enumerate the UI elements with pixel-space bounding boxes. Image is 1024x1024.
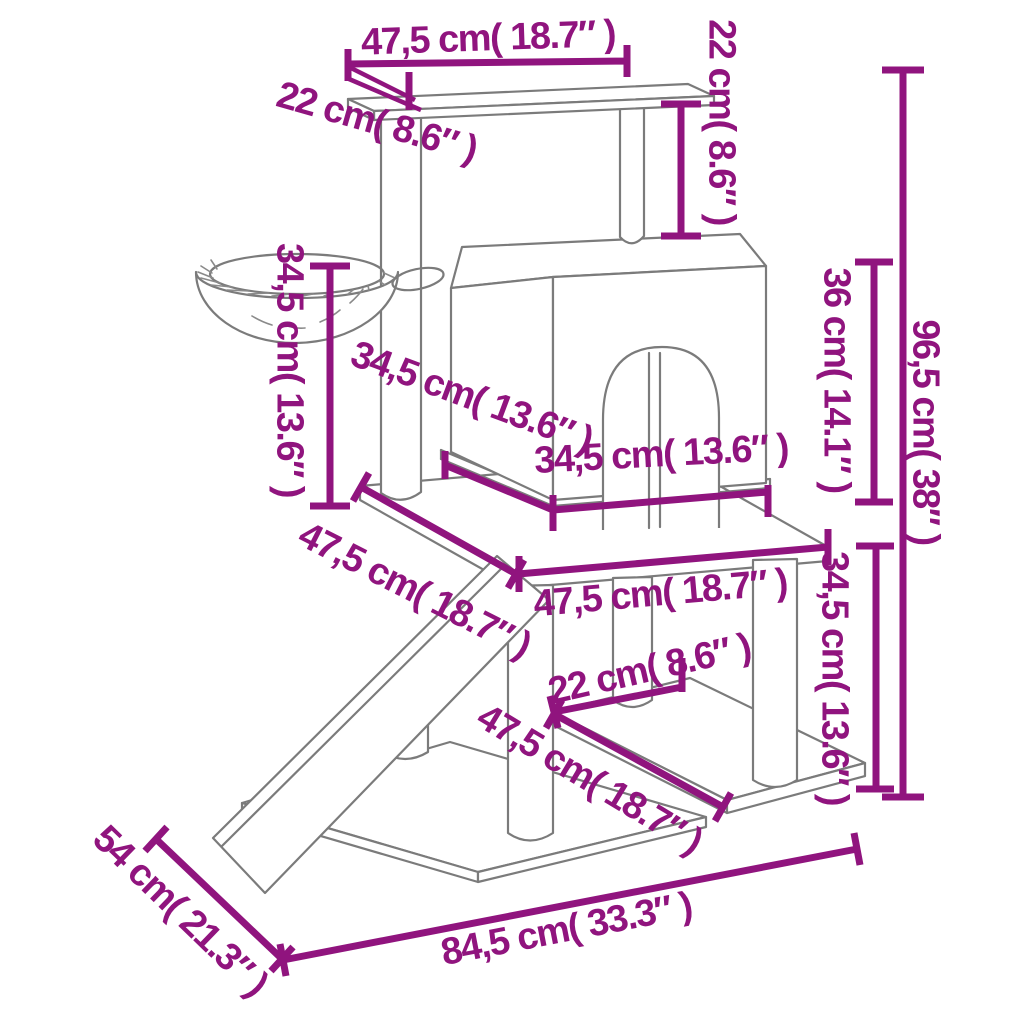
dimension-basket-post-height: 34,5 cm( 13.6″ )	[269, 243, 350, 506]
dimension-lower-section-height: 34,5 cm( 13.6″ )	[814, 546, 894, 805]
dimension-label-lower-section-height: 34,5 cm( 13.6″ )	[814, 551, 856, 805]
dimension-label-basket-post-height: 34,5 cm( 13.6″ )	[269, 243, 311, 497]
upper-right-scratching-post	[620, 102, 644, 243]
dimension-label-overall-height: 96,5 cm( 38″ )	[905, 319, 947, 544]
dimension-top-platform-depth: 22 cm( 8.6″ )	[272, 67, 481, 171]
dimension-label-house-height: 36 cm( 14.1″ )	[816, 267, 858, 492]
dimension-house-height: 36 cm( 14.1″ )	[816, 262, 893, 502]
dimension-diagram: 47,5 cm( 18.7″ ) 22 cm( 8.6″ ) 22 cm( 8.…	[0, 0, 1024, 1024]
dimension-top-platform-width: 47,5 cm( 18.7″ )	[348, 13, 627, 81]
dimension-label-base-width: 84,5 cm( 33.3″ )	[438, 884, 695, 974]
dimension-label-top-platform-width: 47,5 cm( 18.7″ )	[360, 13, 615, 64]
cat-tree-diagram-svg: 47,5 cm( 18.7″ ) 22 cm( 8.6″ ) 22 cm( 8.…	[0, 0, 1024, 1024]
dimension-label-top-clearance-height: 22 cm( 8.6″ )	[701, 19, 743, 225]
dimension-overall-height: 96,5 cm( 38″ )	[882, 70, 947, 797]
dimension-top-clearance-height: 22 cm( 8.6″ )	[661, 19, 743, 236]
dimension-label-top-platform-depth: 22 cm( 8.6″ )	[272, 74, 481, 171]
